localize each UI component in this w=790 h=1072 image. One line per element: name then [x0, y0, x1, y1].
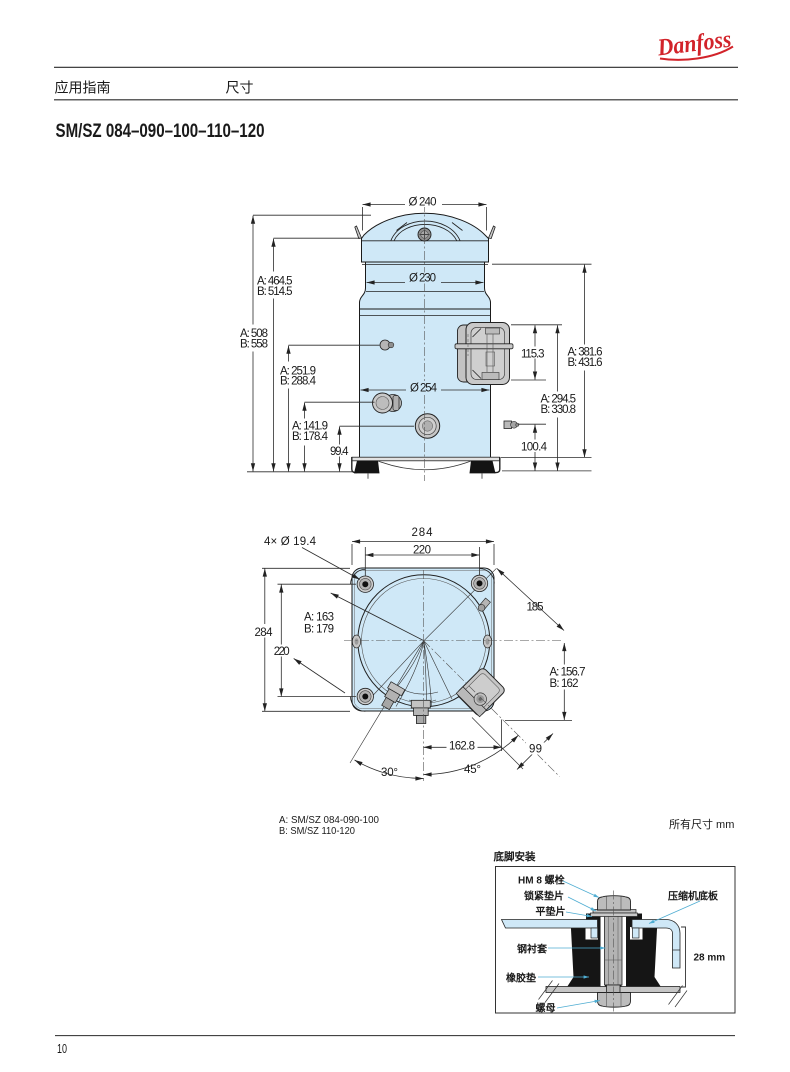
- svg-text:220: 220: [413, 545, 431, 557]
- svg-text:115.3: 115.3: [521, 349, 545, 361]
- svg-text:162.8: 162.8: [449, 741, 475, 753]
- svg-text:B: 514.5: B: 514.5: [257, 286, 293, 298]
- svg-text:30°: 30°: [381, 767, 398, 779]
- svg-text:Ø 240: Ø 240: [409, 197, 437, 209]
- svg-text:B: SM/SZ 110-120: B: SM/SZ 110-120: [279, 826, 356, 837]
- svg-text:橡胶垫: 橡胶垫: [506, 972, 536, 985]
- svg-text:28 mm: 28 mm: [694, 953, 726, 964]
- svg-text:B: 162: B: 162: [550, 678, 579, 690]
- svg-text:锁紧垫片: 锁紧垫片: [524, 890, 564, 903]
- svg-text:应用指南: 应用指南: [55, 80, 111, 96]
- svg-text:Ø 230: Ø 230: [409, 273, 436, 285]
- svg-text:99.4: 99.4: [330, 446, 349, 458]
- svg-text:所有尺寸 mm: 所有尺寸 mm: [669, 817, 734, 831]
- svg-text:Ø 254: Ø 254: [410, 383, 438, 395]
- svg-text:B: 330.8: B: 330.8: [541, 404, 577, 416]
- svg-text:尺寸: 尺寸: [226, 80, 254, 96]
- svg-text:SM/SZ 084–090–100–110–120: SM/SZ 084–090–100–110–120: [56, 120, 265, 142]
- svg-text:185: 185: [527, 602, 544, 614]
- svg-text:4× Ø 19.4: 4× Ø 19.4: [264, 536, 317, 548]
- svg-text:Danfoss: Danfoss: [655, 27, 733, 62]
- svg-text:B: 558: B: 558: [240, 339, 268, 351]
- svg-text:220: 220: [274, 646, 290, 658]
- svg-text:B: 178.4: B: 178.4: [292, 431, 329, 443]
- svg-text:钢衬套: 钢衬套: [517, 943, 548, 956]
- svg-text:A: 163: A: 163: [304, 612, 334, 624]
- svg-text:压缩机底板: 压缩机底板: [668, 890, 719, 903]
- svg-text:284: 284: [412, 527, 434, 539]
- svg-text:100.4: 100.4: [521, 442, 548, 454]
- svg-text:螺母: 螺母: [536, 1002, 556, 1015]
- svg-text:284: 284: [255, 627, 274, 639]
- svg-text:B: 431.6: B: 431.6: [568, 357, 603, 369]
- svg-text:10: 10: [57, 1042, 67, 1056]
- svg-text:99: 99: [529, 744, 542, 756]
- svg-text:平垫片: 平垫片: [536, 905, 566, 918]
- svg-text:B: 179: B: 179: [304, 624, 334, 636]
- svg-text:HM 8 螺栓: HM 8 螺栓: [518, 874, 565, 887]
- svg-text:底脚安装: 底脚安装: [494, 850, 536, 863]
- svg-text:B: 288.4: B: 288.4: [280, 376, 317, 388]
- svg-text:45°: 45°: [464, 764, 481, 776]
- svg-text:A: SM/SZ 084-090-100: A: SM/SZ 084-090-100: [279, 815, 380, 826]
- svg-text:A: 156.7: A: 156.7: [550, 667, 586, 679]
